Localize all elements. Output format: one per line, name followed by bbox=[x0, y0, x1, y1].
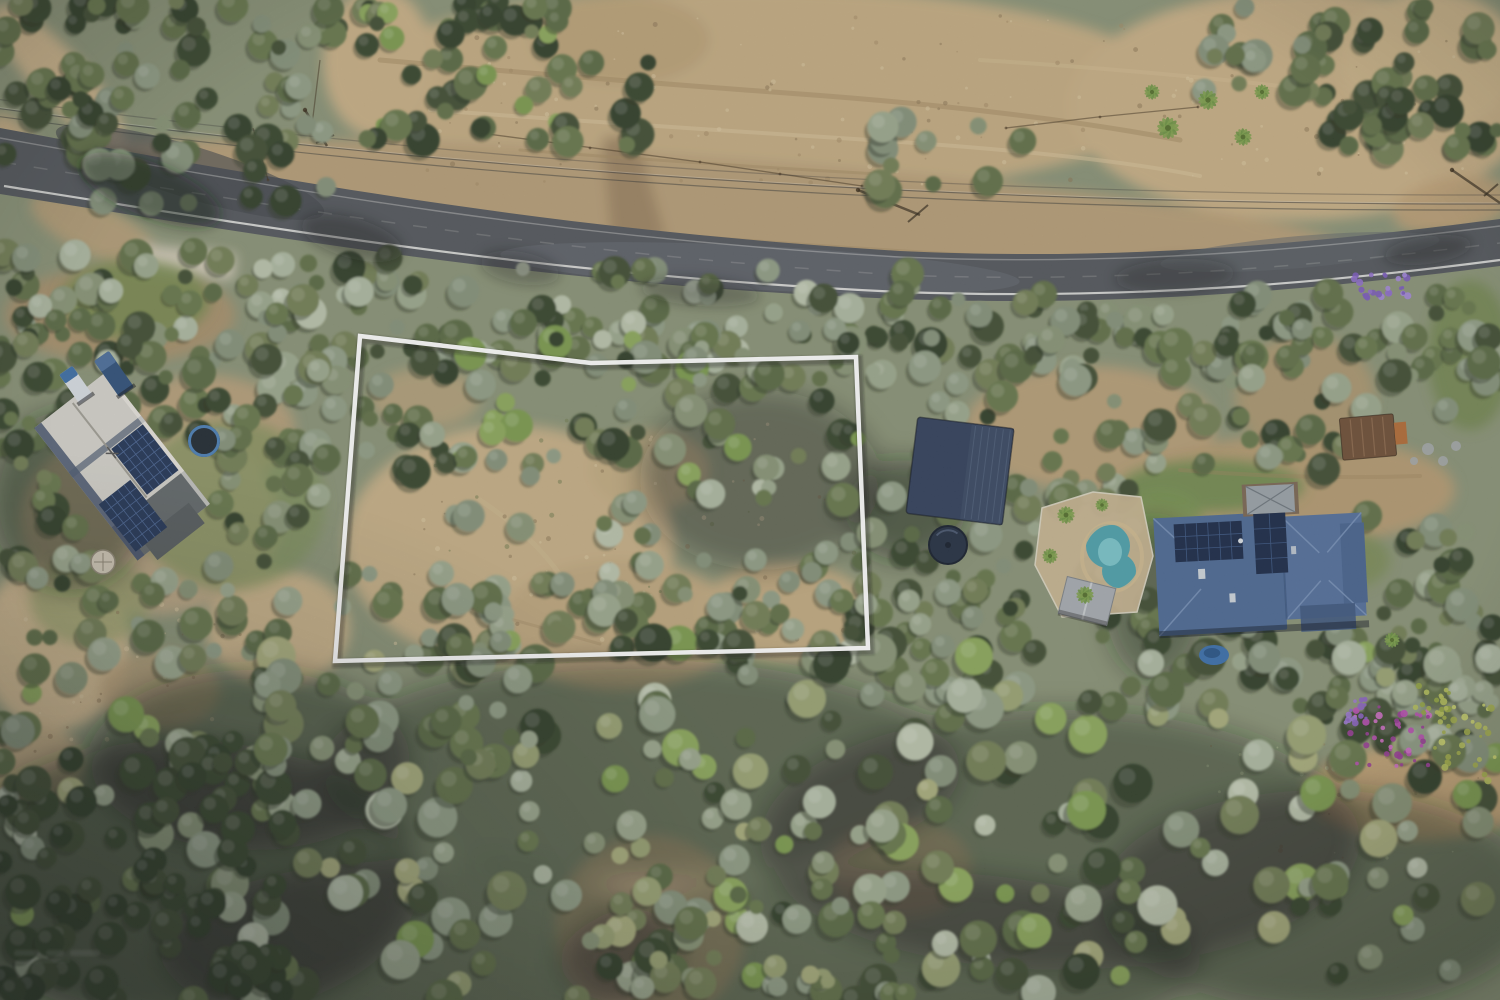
aerial-photo bbox=[0, 0, 1500, 1000]
film-grain-light bbox=[0, 0, 1500, 1000]
aerial-photo-canvas bbox=[0, 0, 1500, 1000]
